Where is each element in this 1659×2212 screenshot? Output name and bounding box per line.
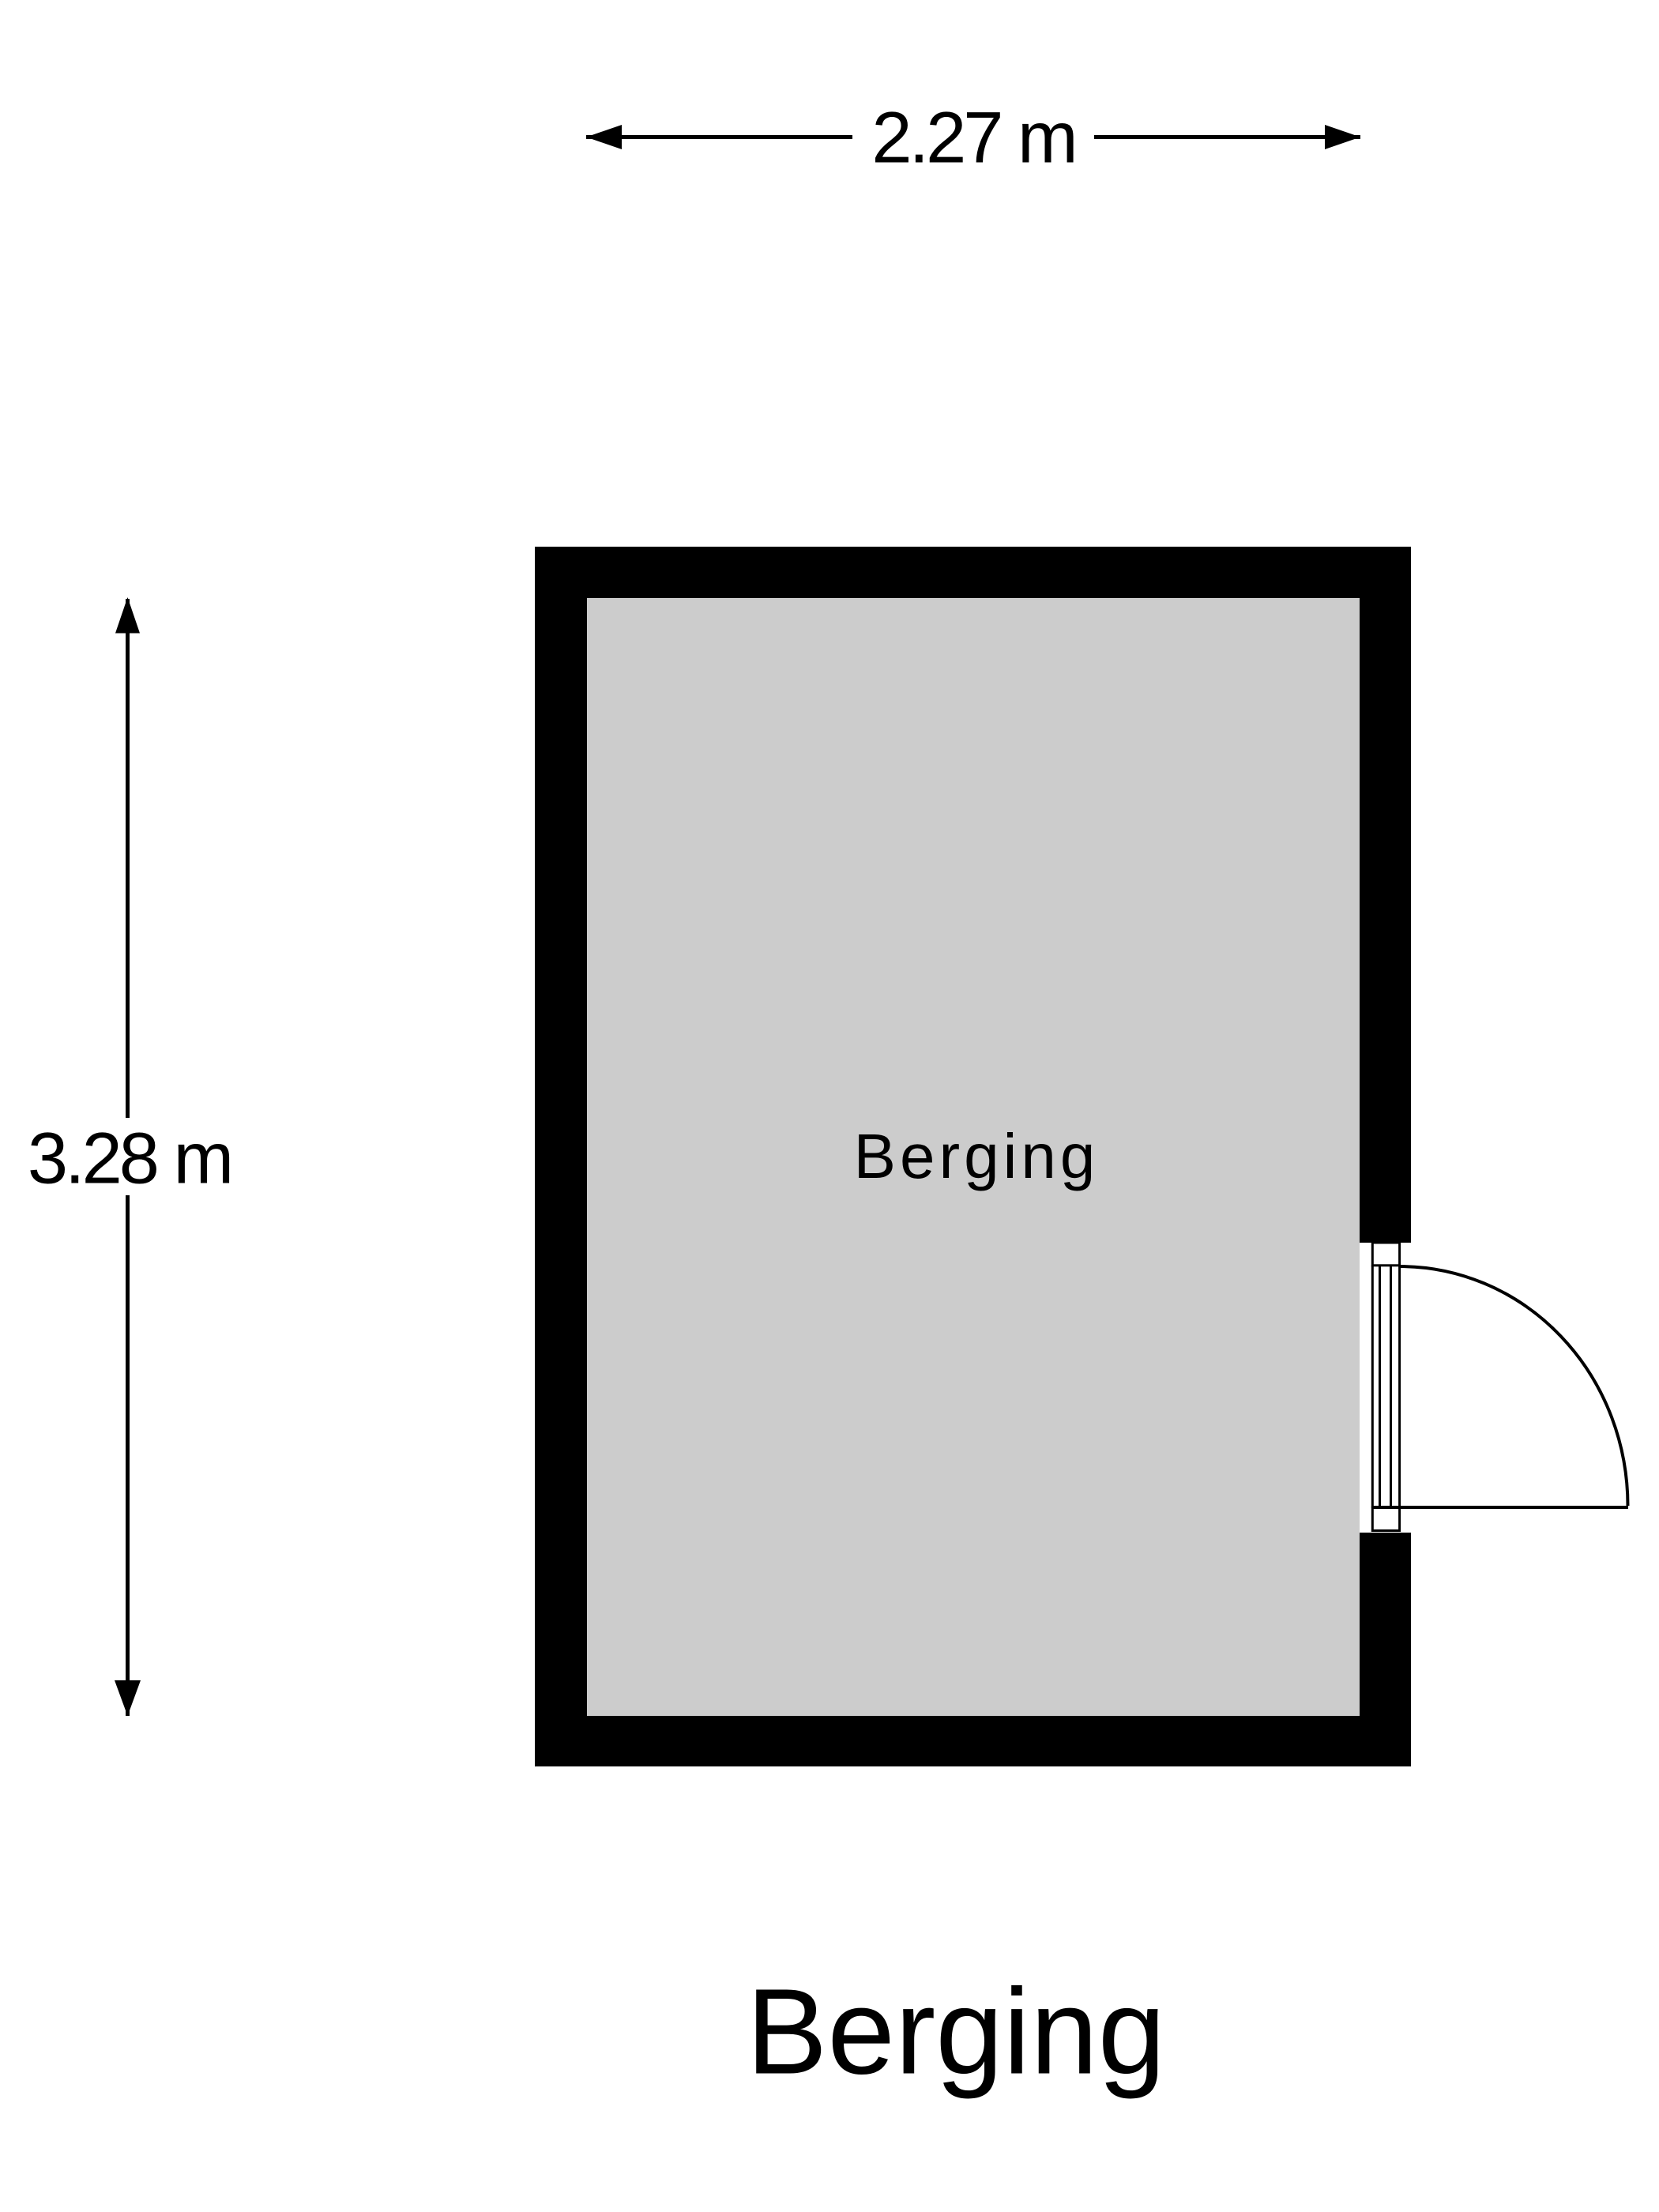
svg-text:2.27 m: 2.27 m (871, 98, 1074, 179)
svg-text:Berging: Berging (747, 1964, 1166, 2100)
svg-text:Berging: Berging (854, 1121, 1100, 1191)
svg-text:3.28 m: 3.28 m (28, 1119, 231, 1199)
